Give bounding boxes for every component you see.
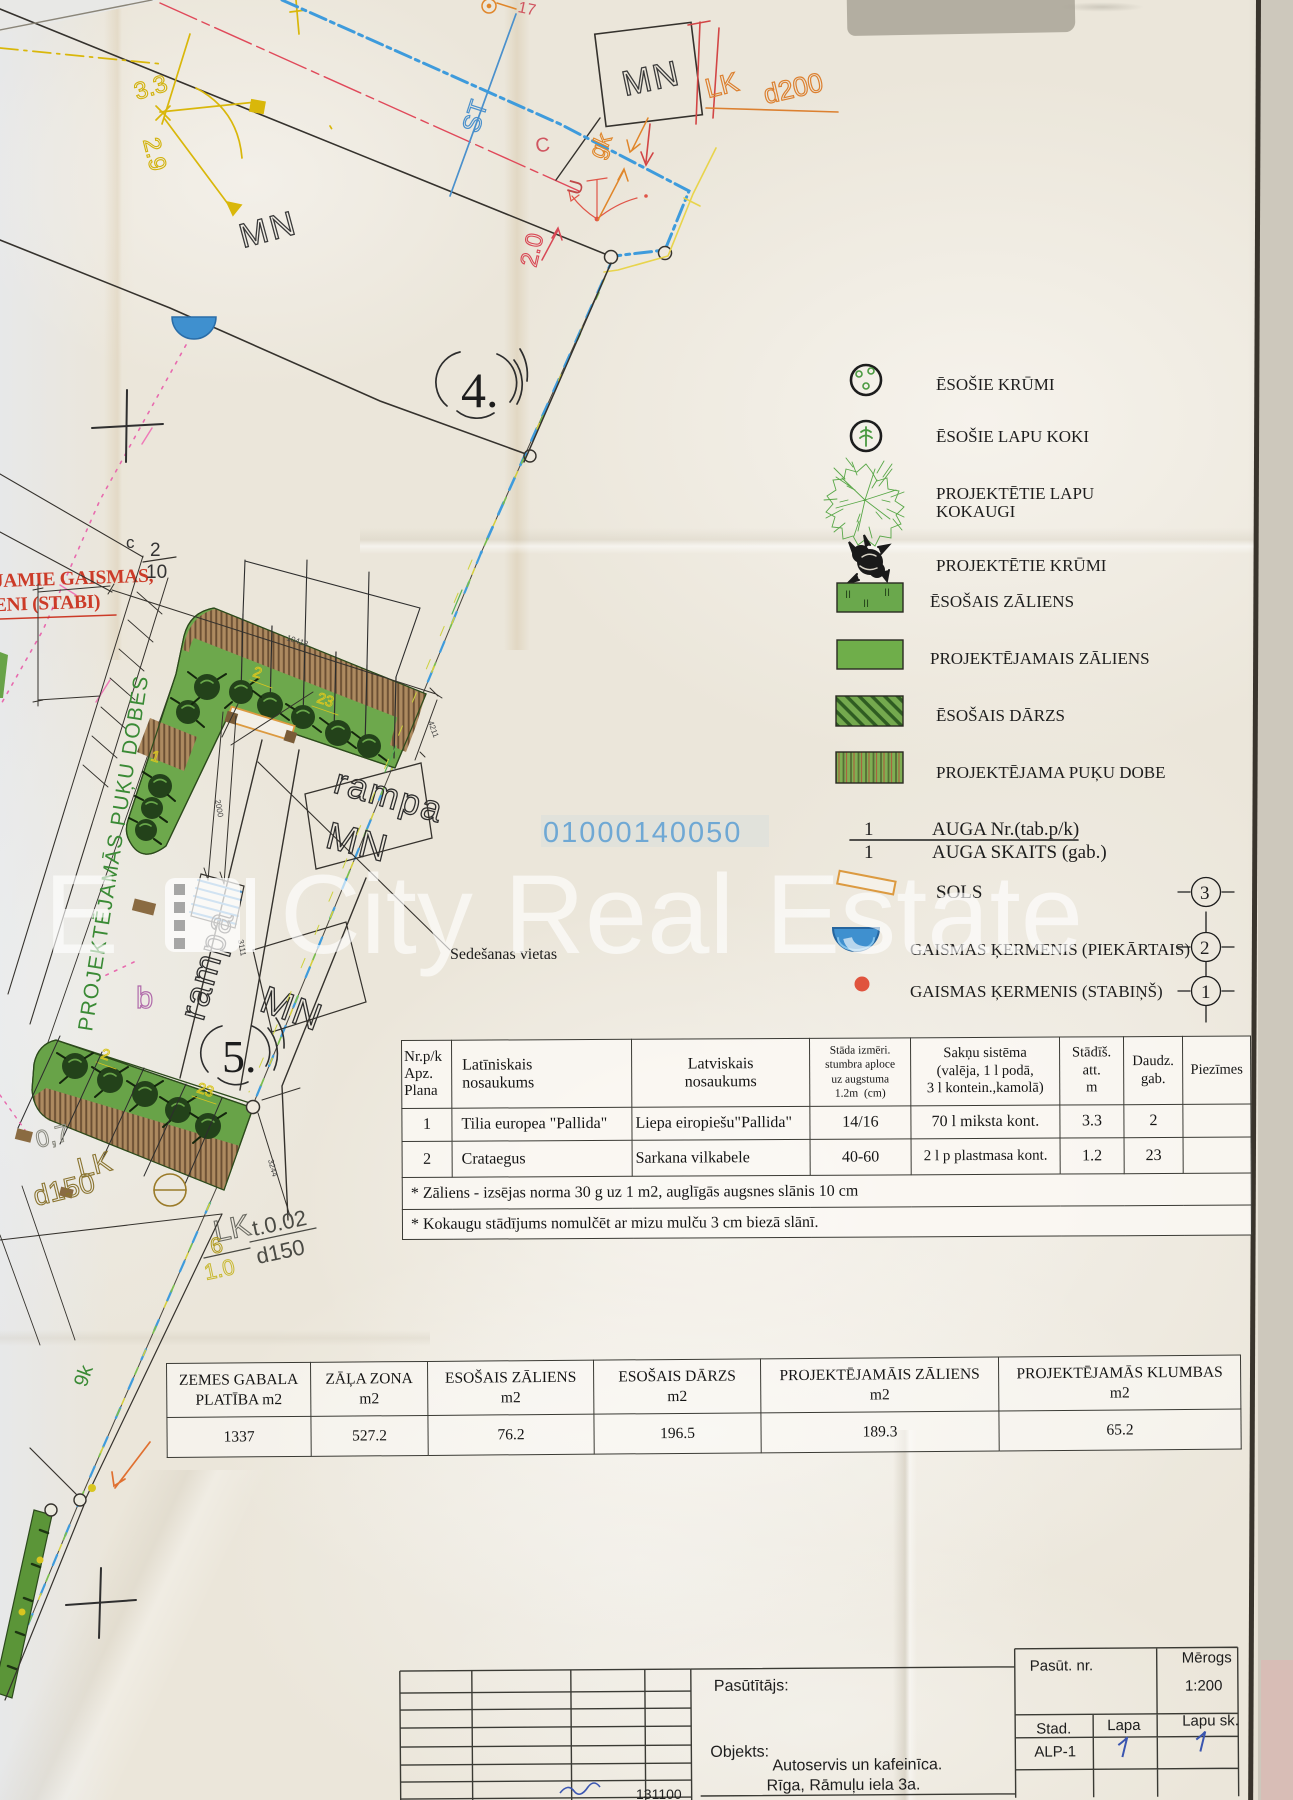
- svg-text:131100: 131100: [636, 1786, 682, 1800]
- svg-text:Pasūtītājs:: Pasūtītājs:: [714, 1677, 789, 1695]
- svg-text:Mērogs: Mērogs: [1182, 1649, 1232, 1666]
- svg-text:Lapa: Lapa: [1107, 1717, 1141, 1734]
- svg-text:ALP-1: ALP-1: [1034, 1743, 1076, 1760]
- svg-text:Stad.: Stad.: [1036, 1720, 1071, 1737]
- svg-text:Rīga, Rāmuļu iela 3a.: Rīga, Rāmuļu iela 3a.: [767, 1776, 921, 1794]
- svg-text:Pasūt. nr.: Pasūt. nr.: [1030, 1657, 1093, 1674]
- svg-text:Objekts:: Objekts:: [710, 1744, 769, 1761]
- svg-text:1:200: 1:200: [1185, 1677, 1223, 1694]
- svg-text:Autoservis un kafeinīca.: Autoservis un kafeinīca.: [772, 1756, 942, 1774]
- svg-text:Lapu sk.: Lapu sk.: [1182, 1712, 1239, 1729]
